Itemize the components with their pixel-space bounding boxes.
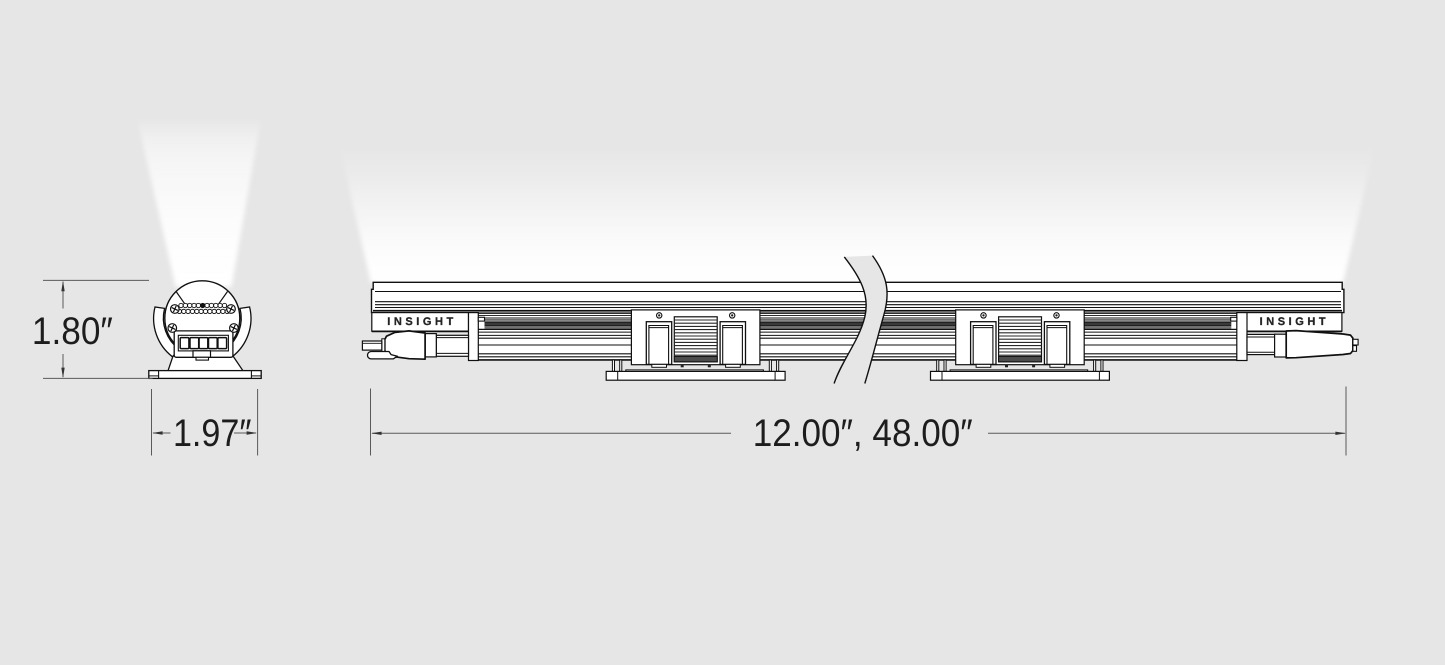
svg-text:1.80″: 1.80″	[32, 310, 113, 353]
svg-text:12.00″, 48.00″: 12.00″, 48.00″	[753, 412, 973, 455]
svg-text:1.97″: 1.97″	[173, 412, 252, 455]
